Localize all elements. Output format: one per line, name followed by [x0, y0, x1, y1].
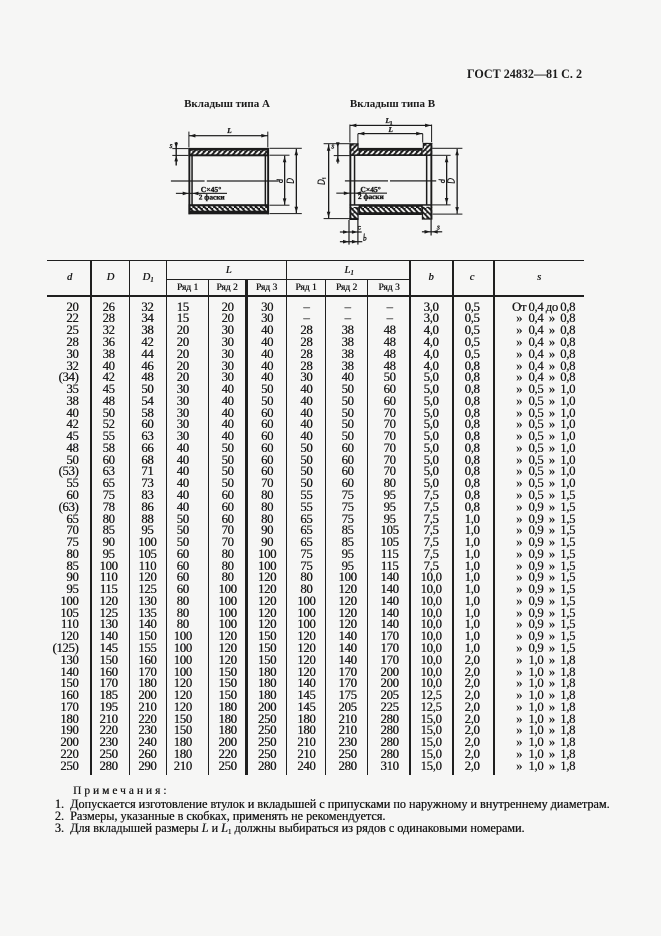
svg-text:2 фаски: 2 фаски: [358, 192, 385, 201]
svg-text:L: L: [226, 127, 232, 135]
svg-text:2 фаски: 2 фаски: [199, 192, 226, 201]
svg-text:L: L: [388, 126, 394, 134]
